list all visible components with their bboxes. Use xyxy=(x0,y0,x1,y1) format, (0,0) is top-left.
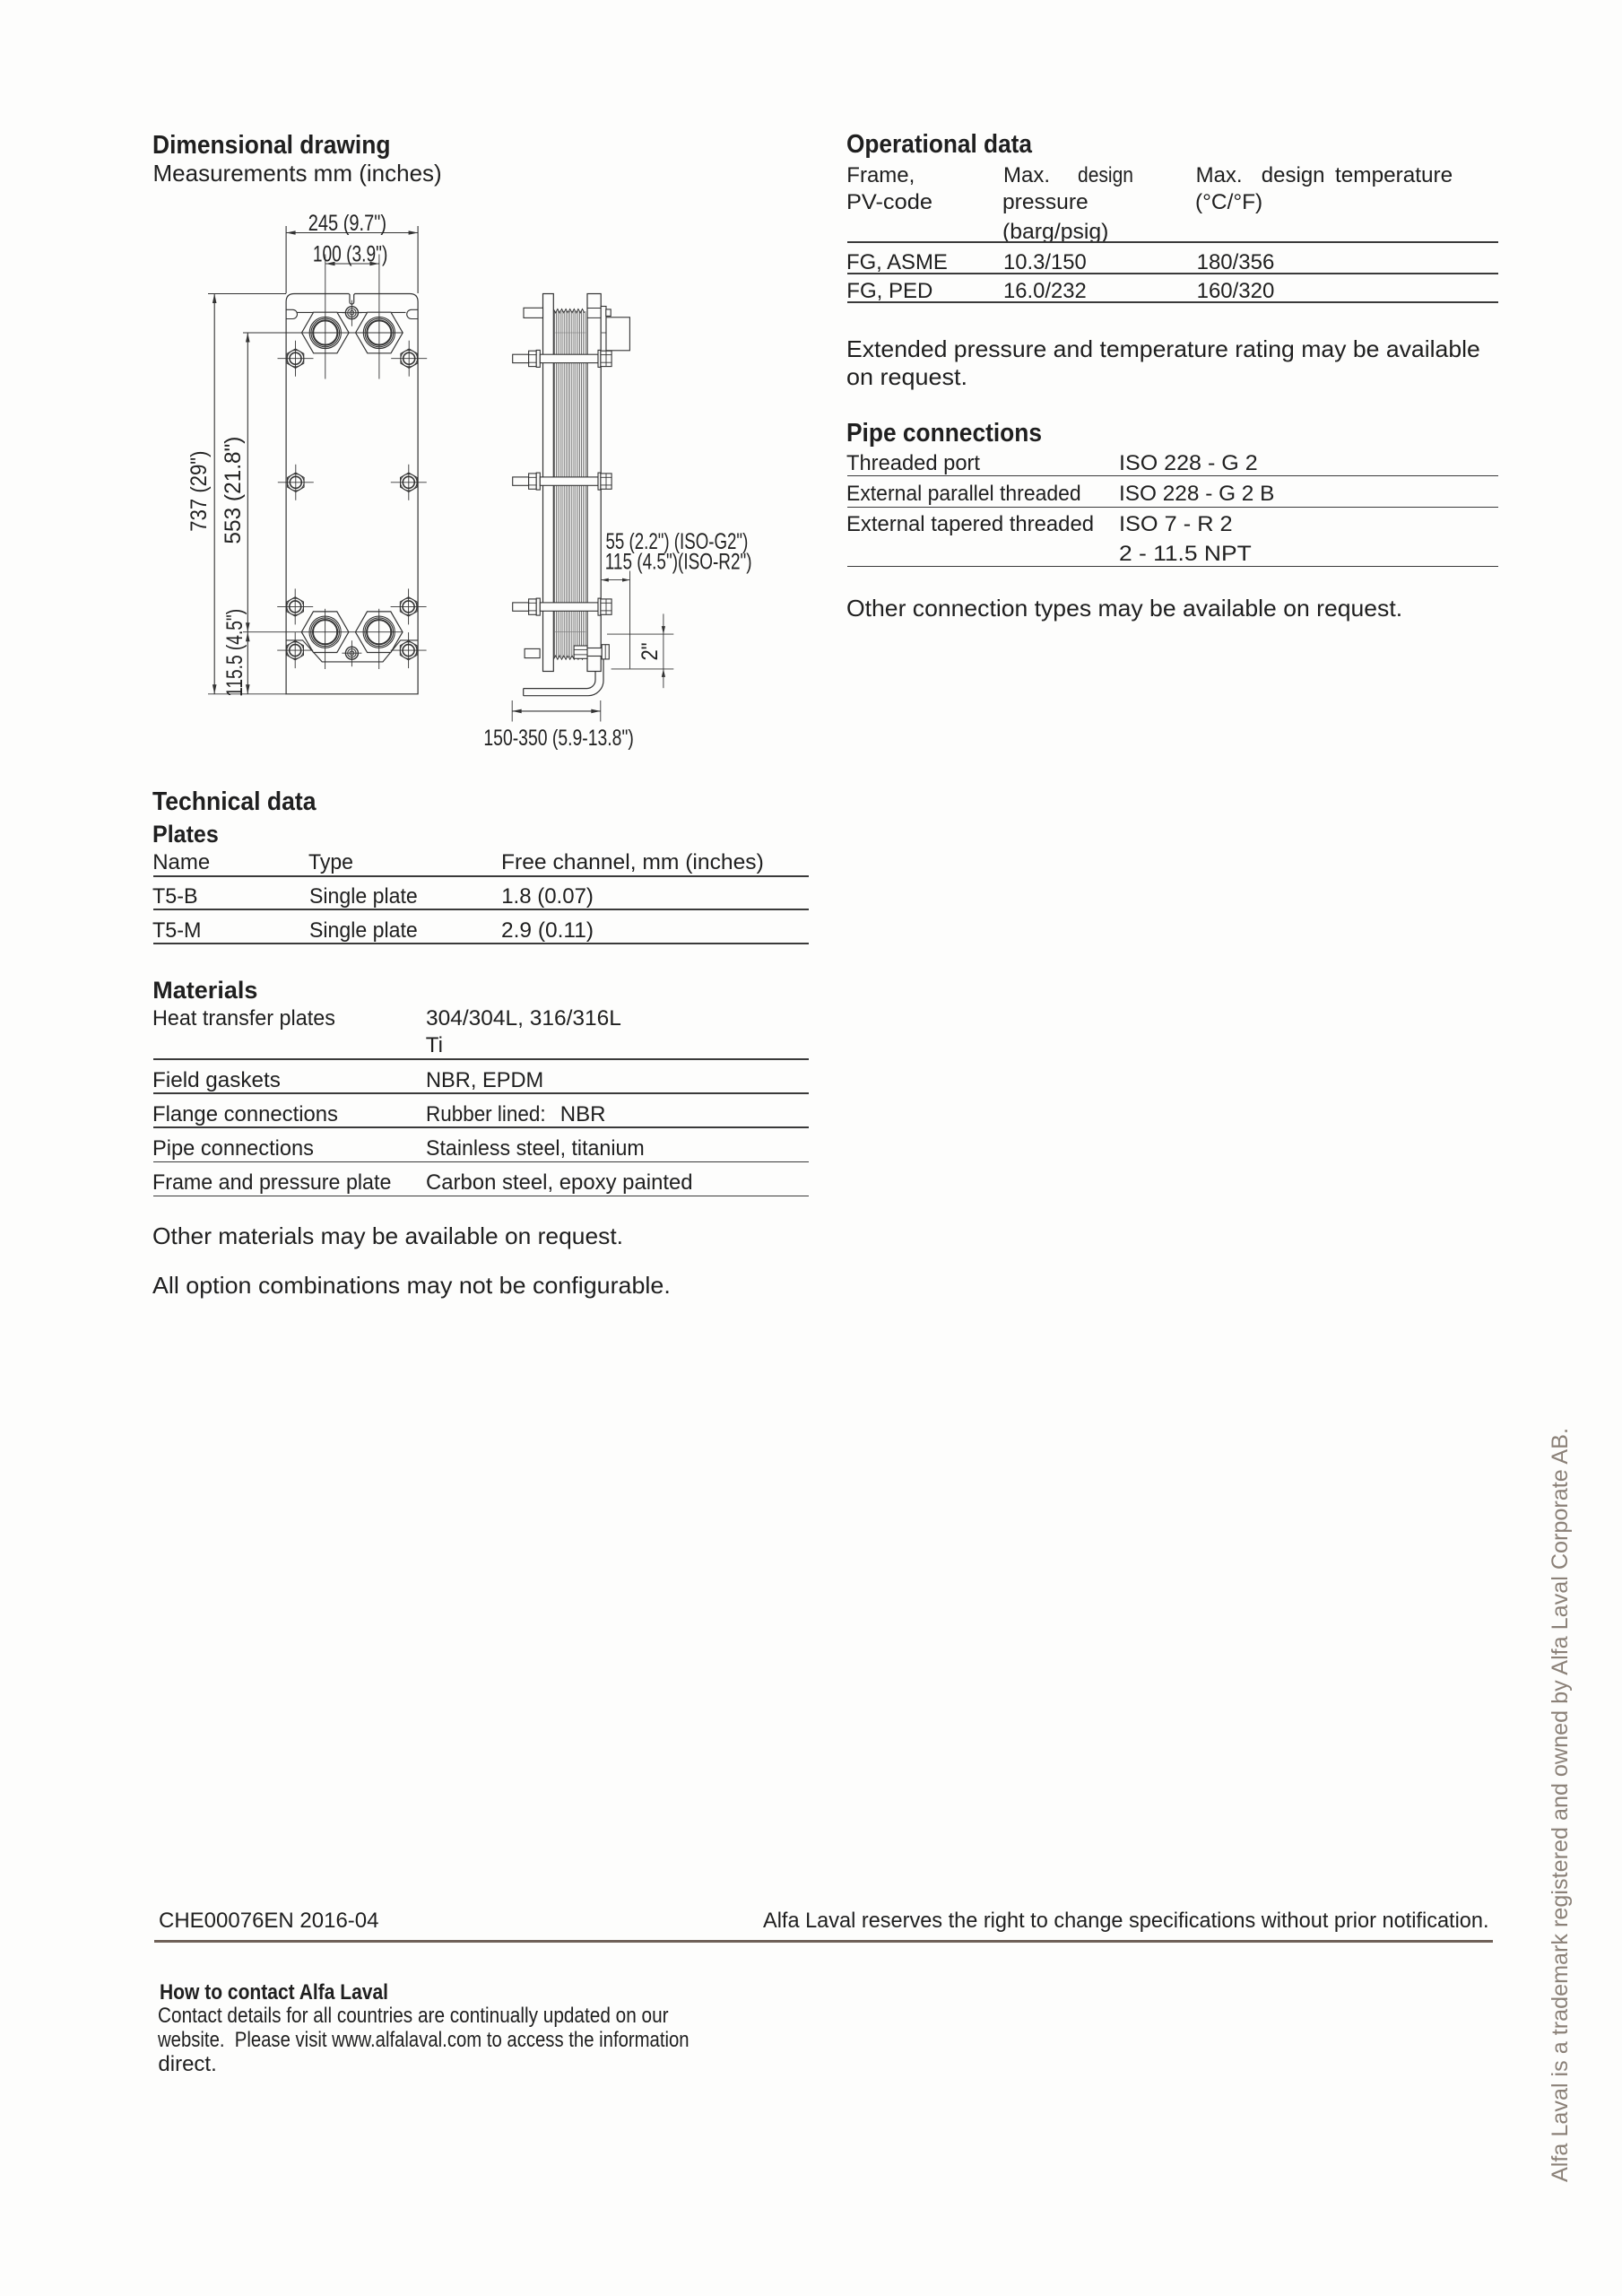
svg-text:150-350 (5.9-13.8"): 150-350 (5.9-13.8") xyxy=(483,726,633,751)
svg-text:100 (3.9"): 100 (3.9") xyxy=(313,241,388,266)
svg-text:553 (21.8"): 553 (21.8") xyxy=(221,437,246,544)
svg-text:115.5 (4.5"): 115.5 (4.5") xyxy=(222,609,247,697)
svg-text:737 (29"): 737 (29") xyxy=(186,451,212,532)
svg-text:2": 2" xyxy=(638,643,663,661)
svg-text:245 (9.7"): 245 (9.7") xyxy=(308,211,386,236)
svg-text:115 (4.5")(ISO-R2"): 115 (4.5")(ISO-R2") xyxy=(605,550,752,575)
